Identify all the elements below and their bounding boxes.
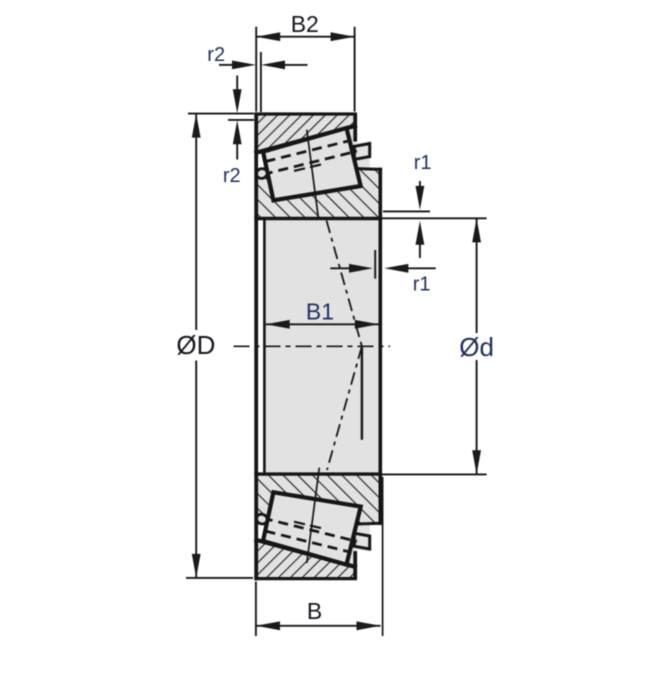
svg-text:Ød: Ød [459, 332, 494, 362]
svg-text:B2: B2 [291, 11, 319, 37]
svg-text:r1: r1 [414, 152, 432, 174]
svg-text:r2: r2 [223, 165, 241, 187]
svg-text:r1: r1 [413, 273, 431, 295]
svg-text:r2: r2 [207, 44, 225, 66]
svg-text:B1: B1 [306, 299, 334, 325]
svg-text:ØD: ØD [176, 330, 215, 360]
svg-text:B: B [307, 598, 322, 624]
